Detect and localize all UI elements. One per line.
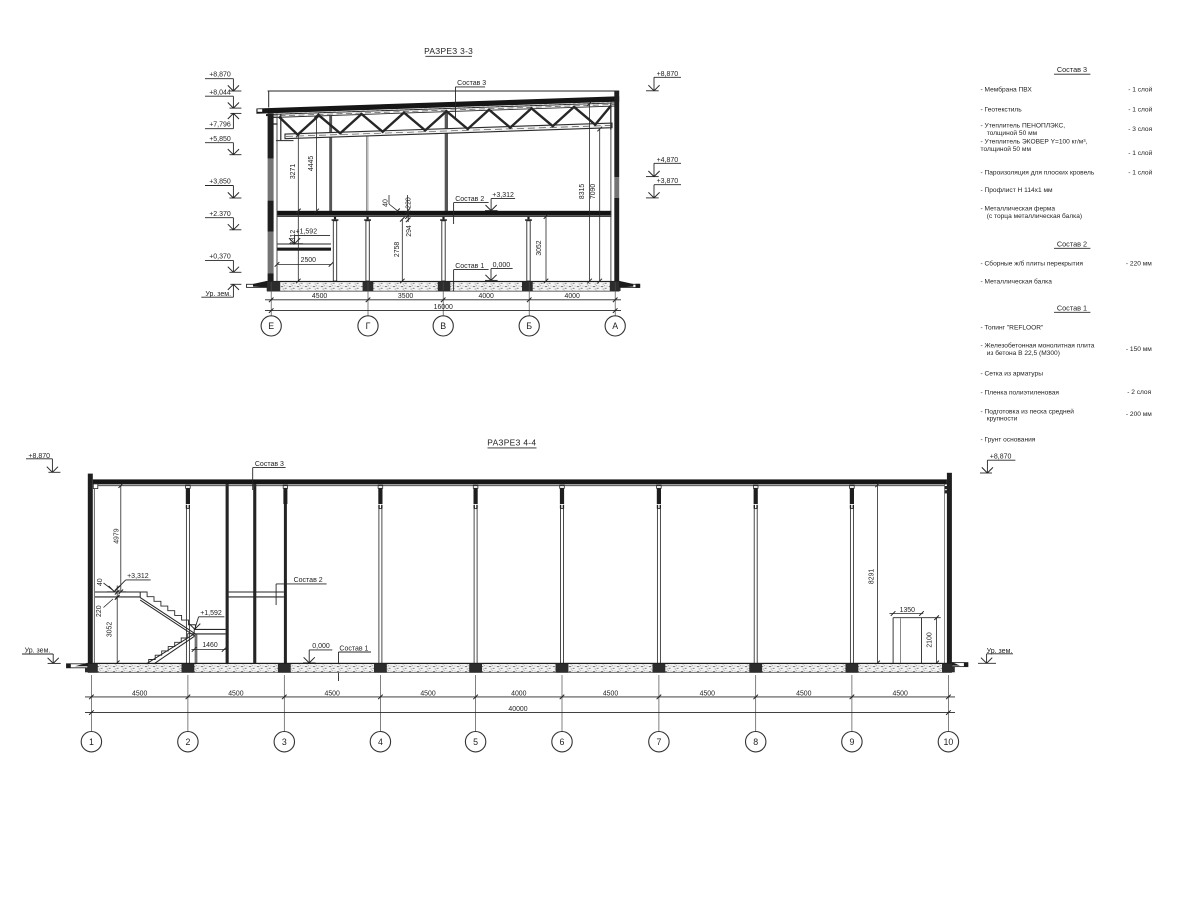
svg-text:2500: 2500 [301, 257, 316, 264]
svg-text:Б: Б [526, 321, 532, 331]
svg-text:- Пароизоляция для плоских кро: - Пароизоляция для плоских кровель [981, 169, 1095, 176]
svg-text:3052: 3052 [107, 622, 114, 637]
svg-text:РАЗРЕЗ 3-3: РАЗРЕЗ 3-3 [424, 46, 473, 56]
svg-text:Состав 3: Состав 3 [255, 461, 284, 468]
svg-text:- 1 слой: - 1 слой [1128, 105, 1152, 113]
svg-text:4500: 4500 [603, 690, 618, 697]
svg-text:А: А [612, 321, 618, 331]
svg-text:4979: 4979 [113, 528, 120, 543]
svg-text:4500: 4500 [893, 690, 908, 697]
svg-text:- 1 слой: - 1 слой [1128, 168, 1152, 176]
svg-text:294: 294 [406, 225, 413, 237]
svg-text:1460: 1460 [202, 642, 217, 649]
svg-text:+3,312: +3,312 [492, 192, 514, 199]
svg-text:4500: 4500 [312, 293, 327, 300]
svg-text:8315: 8315 [579, 184, 586, 199]
svg-text:4500: 4500 [420, 690, 435, 697]
svg-text:Состав 2: Состав 2 [1057, 239, 1087, 248]
svg-text:из бетона В 22,5 (М300): из бетона В 22,5 (М300) [987, 349, 1060, 357]
svg-text:Состав 3: Состав 3 [457, 80, 486, 87]
svg-text:4500: 4500 [325, 690, 340, 697]
svg-text:1350: 1350 [900, 607, 915, 614]
svg-text:4000: 4000 [565, 293, 580, 300]
svg-text:3271: 3271 [290, 164, 297, 179]
svg-text:4445: 4445 [308, 156, 315, 171]
svg-text:Е: Е [268, 321, 274, 331]
svg-text:220: 220 [96, 605, 103, 617]
svg-text:+8,870: +8,870 [209, 72, 231, 79]
svg-text:2758: 2758 [394, 242, 401, 257]
svg-text:В: В [440, 321, 446, 331]
svg-text:толщиной 50 мм: толщиной 50 мм [987, 129, 1038, 137]
svg-text:Состав 2: Состав 2 [294, 577, 323, 584]
svg-text:- 220 мм: - 220 мм [1126, 260, 1152, 267]
svg-text:- Железобетонная монолитная п: - Железобетонная монолитная плита [981, 342, 1095, 350]
svg-text:0,000: 0,000 [493, 262, 511, 269]
svg-text:4: 4 [378, 737, 383, 747]
svg-text:- Сетка из арматуры: - Сетка из арматуры [981, 371, 1044, 378]
svg-text:толщиной 50 мм: толщиной 50 мм [981, 145, 1032, 153]
svg-text:4500: 4500 [796, 690, 811, 697]
svg-text:40: 40 [383, 199, 390, 207]
svg-text:- 2 слоя: - 2 слоя [1127, 389, 1151, 396]
svg-text:- Подготовка из песка средней: - Подготовка из песка средней [981, 408, 1075, 416]
svg-text:220: 220 [406, 197, 413, 209]
svg-text:Состав 1: Состав 1 [1057, 303, 1087, 312]
svg-text:РАЗРЕЗ 4-4: РАЗРЕЗ 4-4 [487, 437, 536, 447]
svg-text:- Геотекстиль: - Геотекстиль [981, 106, 1023, 113]
svg-text:7090: 7090 [590, 184, 597, 199]
svg-text:+1,592: +1,592 [200, 610, 222, 617]
svg-text:- Утеплитель ЭКОВЕР Y=100 кг/м: - Утеплитель ЭКОВЕР Y=100 кг/м³, [981, 139, 1088, 146]
svg-text:0,000: 0,000 [312, 643, 330, 650]
svg-text:+1,592: +1,592 [295, 228, 317, 235]
svg-text:- Металлическая ферма: - Металлическая ферма [981, 205, 1056, 212]
svg-text:- Утеплитель ПЕНОПЛЭКС,: - Утеплитель ПЕНОПЛЭКС, [981, 123, 1066, 130]
svg-text:- 1 слой: - 1 слой [1128, 149, 1152, 157]
svg-text:Состав 2: Состав 2 [455, 196, 484, 203]
svg-text:40000: 40000 [508, 706, 527, 713]
svg-text:8: 8 [753, 737, 758, 747]
svg-text:3312: 3312 [290, 230, 297, 245]
svg-text:3052: 3052 [536, 240, 543, 255]
svg-text:Состав 3: Состав 3 [1057, 65, 1087, 74]
svg-text:- 1 слой: - 1 слой [1128, 85, 1152, 93]
svg-text:+7,796: +7,796 [209, 122, 231, 129]
svg-text:4500: 4500 [228, 690, 243, 697]
svg-text:9: 9 [849, 737, 854, 747]
svg-text:+3,870: +3,870 [657, 178, 679, 185]
svg-text:8291: 8291 [868, 569, 875, 584]
svg-text:+3,850: +3,850 [209, 178, 231, 185]
svg-text:4000: 4000 [511, 690, 526, 697]
svg-text:+3,312: +3,312 [127, 573, 149, 580]
svg-text:- Топинг "REFLOOR": - Топинг "REFLOOR" [981, 324, 1045, 331]
svg-text:2100: 2100 [927, 632, 934, 647]
svg-text:Г: Г [366, 321, 371, 331]
svg-text:- Грунт основания: - Грунт основания [981, 437, 1036, 444]
svg-text:Состав 1: Состав 1 [455, 263, 484, 270]
svg-text:4500: 4500 [700, 690, 715, 697]
svg-text:4000: 4000 [479, 293, 494, 300]
svg-text:- Пленка полиэтиленовая: - Пленка полиэтиленовая [981, 389, 1060, 396]
svg-text:3: 3 [282, 737, 287, 747]
svg-text:- 3 слоя: - 3 слоя [1128, 126, 1152, 133]
svg-text:+5,850: +5,850 [209, 136, 231, 143]
svg-text:+4,870: +4,870 [657, 157, 679, 164]
svg-text:- 200 мм: - 200 мм [1126, 411, 1152, 418]
svg-text:- Мембрана ПВХ: - Мембрана ПВХ [981, 85, 1033, 93]
svg-text:+0,370: +0,370 [209, 254, 231, 261]
svg-text:5: 5 [473, 737, 478, 747]
svg-text:40: 40 [97, 578, 104, 586]
svg-text:- Металлическая балка: - Металлическая балка [981, 278, 1053, 286]
svg-text:Ур. зем.: Ур. зем. [25, 648, 51, 655]
svg-text:- Профлист Н 114х1 мм: - Профлист Н 114х1 мм [981, 187, 1053, 194]
svg-text:+8,044: +8,044 [209, 89, 231, 96]
svg-text:2: 2 [185, 737, 190, 747]
svg-text:16000: 16000 [434, 304, 453, 311]
svg-text:+2.370: +2.370 [209, 211, 231, 218]
svg-text:крупности: крупности [987, 416, 1018, 423]
svg-text:10: 10 [944, 737, 954, 747]
svg-text:(с торца металлическая балка): (с торца металлическая балка) [987, 212, 1082, 220]
svg-text:7: 7 [656, 737, 661, 747]
svg-text:Состав 1: Состав 1 [339, 645, 368, 652]
svg-text:1: 1 [89, 737, 94, 747]
svg-text:4500: 4500 [132, 690, 147, 697]
svg-text:6: 6 [560, 737, 565, 747]
svg-text:3500: 3500 [398, 293, 413, 300]
svg-text:+8,870: +8,870 [990, 454, 1012, 461]
svg-text:- 150 мм: - 150 мм [1126, 346, 1152, 353]
svg-text:- Сборные ж/б плиты перекрытия: - Сборные ж/б плиты перекрытия [981, 259, 1084, 267]
